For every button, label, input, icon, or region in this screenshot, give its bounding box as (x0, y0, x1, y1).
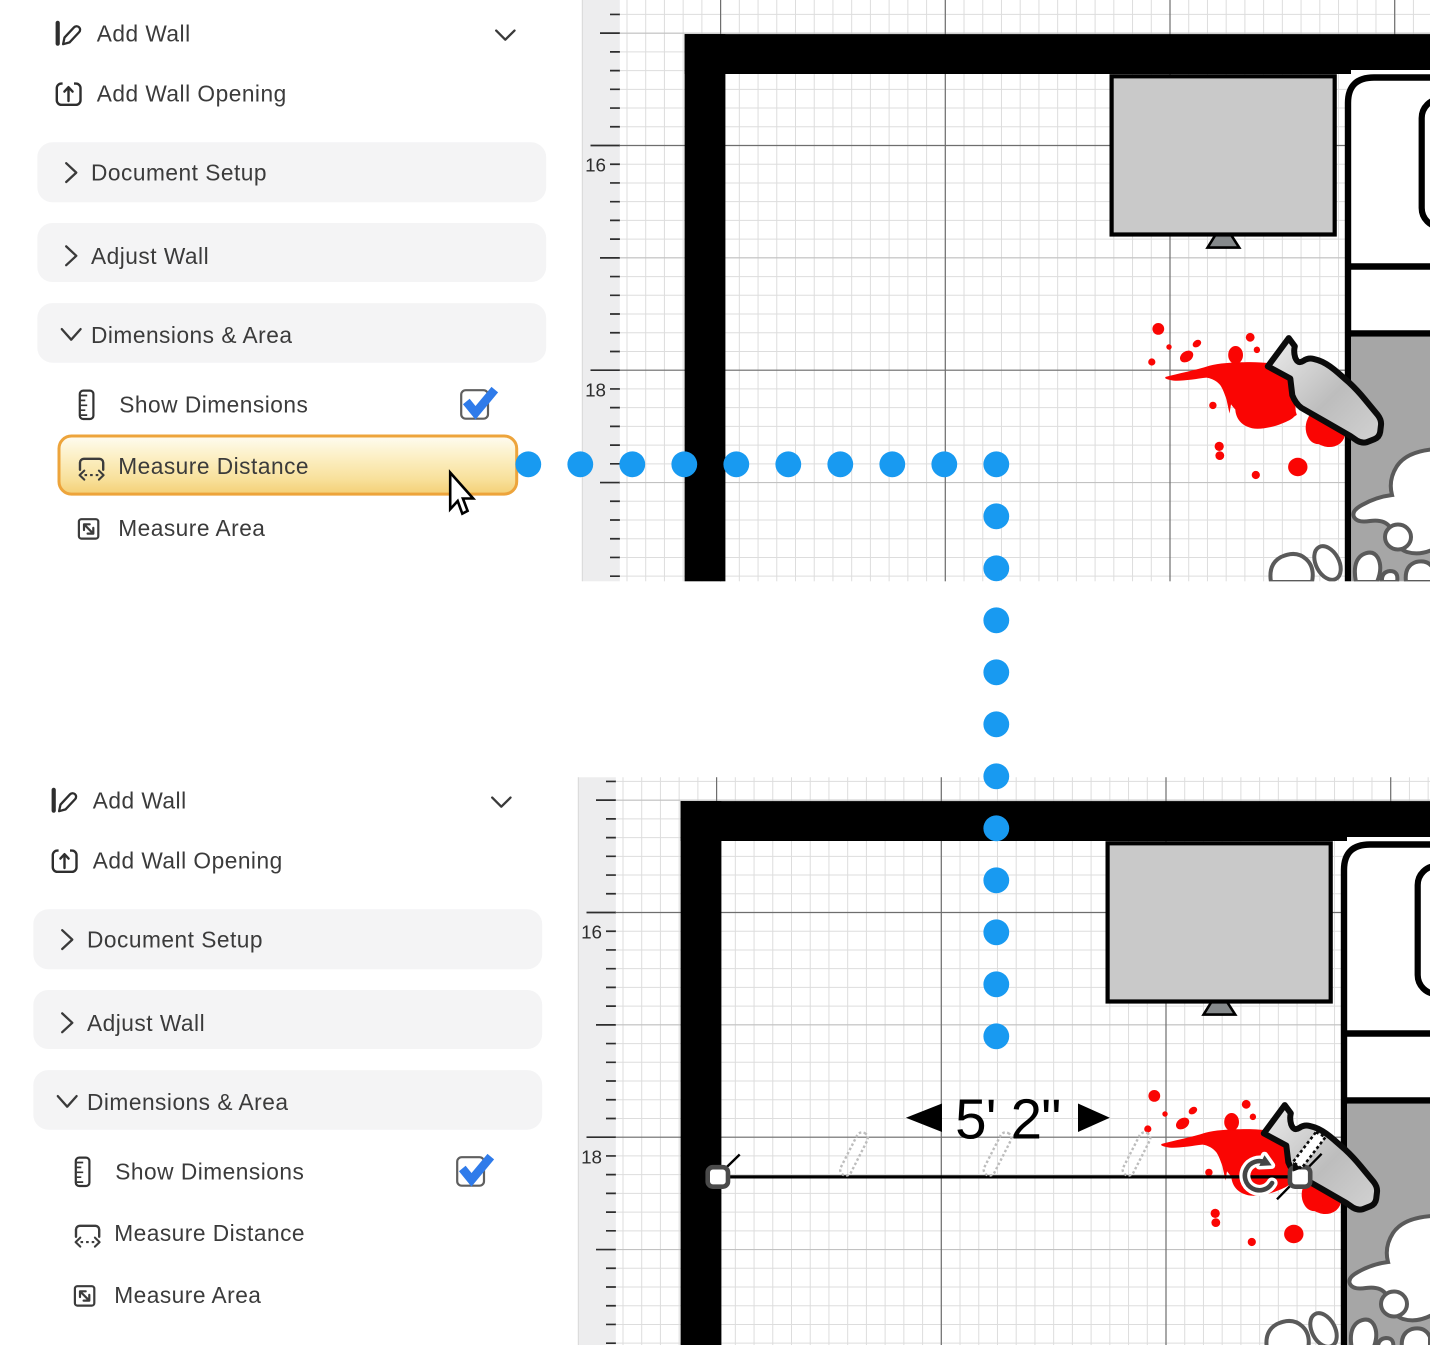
svg-text:5' 2": 5' 2" (955, 1088, 1060, 1151)
